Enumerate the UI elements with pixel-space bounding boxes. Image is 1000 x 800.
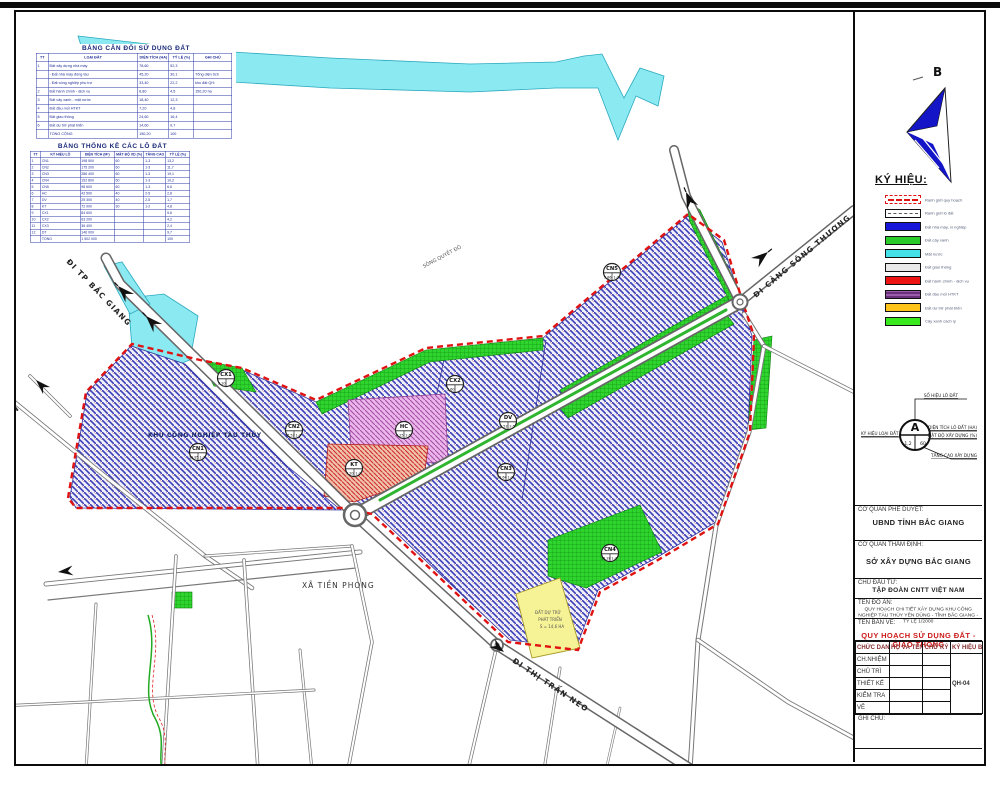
lot-symbol: CN119,851-3 [189,444,207,461]
svg-text:3,60: 3,60 [447,388,455,392]
approval-section: CƠ QUAN PHÊ DUYỆT: UBND TỈNH BẮC GIANG [855,505,982,540]
legend-label: Đất nhà máy, xí nghiệp [925,225,966,230]
sig-role: CH.NHIỆM [856,654,890,666]
appraisal-label: CƠ QUAN THẨM ĐỊNH: [858,542,979,548]
svg-text:1-3: 1-3 [199,456,205,460]
legend-swatch [885,222,921,231]
sig-header: HỌ VÀ TÊN [890,642,923,654]
lot-symbol: CN328,641-3 [497,464,515,481]
lot-symbol: KT7,201-2 [346,460,363,477]
svg-text:1-3: 1-3 [295,434,301,438]
table-cell: GHI CHÚ [194,53,232,62]
river-label: SÔNG QUYẾT ĐÔ [421,243,462,270]
commune-label: XÃ TIỀN PHONG [302,580,375,590]
legend-label: Mặt nước [925,252,950,257]
drawing-label: TÊN BẢN VẼ: [858,620,979,626]
approval-agency: UBND TỈNH BẮC GIANG [858,518,979,527]
legend-label: Ranh giới lô đất [925,211,954,216]
svg-text:CN2: CN2 [288,424,300,430]
sig-role: VẼ [856,702,890,714]
title-block-panel: B KÝ HIỆU: Ranh giới quy hoạchRanh giới … [853,12,984,762]
table-cell: TỔNG CỘNG [48,130,138,139]
table-cell: DIỆN TÍCH (HA) [138,53,169,62]
legend-item: Ranh giới lô đất [885,207,981,221]
table-cell [144,236,166,243]
svg-text:28,64: 28,64 [497,476,507,480]
legend-swatch [885,236,921,245]
reserve-label-3: S = 14,6 HA [540,624,565,629]
investor-label: CHỦ ĐẦU TƯ: [858,580,979,586]
legend-label: Đất cây xanh [925,238,950,243]
svg-text:2,53: 2,53 [500,425,508,429]
table-cell: 4,5 [169,87,194,96]
sig-header: KÝ HIỆU BV [951,642,983,654]
table-cell: Đất đầu mối HTKT [48,104,138,113]
svg-text:4,25: 4,25 [396,434,404,438]
lot-symbol-val-left: 1,2 [904,441,911,447]
sheet-top-bar [0,2,1000,8]
svg-text:CN5: CN5 [606,266,618,272]
legend-swatch [885,303,921,312]
svg-text:CN3: CN3 [500,466,512,472]
svg-text:CX1: CX1 [220,372,232,378]
table-cell: 78,60 [138,62,169,71]
lot-symbol: CN59,861-3 [604,264,621,281]
table-cell: Đất dự trữ phát triển [48,121,138,130]
table-cell: khu đất QH: [194,79,232,88]
sig-header: CHỨC DANH [856,642,890,654]
lot-stats-table: TTKÝ HIỆU LÔDIỆN TÍCH (M²)MẬT ĐỘ XD (%)T… [30,151,190,243]
table-cell [194,113,232,122]
lot-symbol: CX23,60 [447,376,464,393]
table-cell: 150,20 ha [194,87,232,96]
legend-item: Mặt nước [885,247,981,261]
svg-text:19,85: 19,85 [189,456,199,460]
approval-label: CƠ QUAN PHÊ DUYỆT: [858,507,979,513]
legend-item: Đất đầu mối HTKT [885,288,981,302]
table-cell: Đất cây xanh - mặt nước [48,96,138,105]
sig-header: CHỮ KÝ [923,642,951,654]
lot-symbol: HC4,252-5 [396,422,413,439]
lot-symbol-label-right2: MẬT ĐỘ XÂY DỰNG (%) [928,433,978,438]
table-cell: 7,20 [138,104,169,113]
table-cell [114,236,144,243]
svg-text:DV: DV [504,415,512,421]
sig-role: CHỦ TRÌ [856,666,890,678]
table-cell: 1 502 000 [80,236,114,243]
table-cell [194,104,232,113]
table-cell [194,121,232,130]
svg-text:2-5: 2-5 [405,434,411,438]
table-cell: LOẠI ĐẤT [48,53,138,62]
table-cell: 9,7 [169,121,194,130]
sig-role: KIỂM TRA [856,690,890,702]
legend-label: Đất dự trữ phát triển [925,306,962,311]
land-balance-table: TTLOẠI ĐẤTDIỆN TÍCH (HA)TỶ LỆ (%)GHI CHÚ… [36,53,232,139]
legend-item: Đất nhà máy, xí nghiệp [885,220,981,234]
signature-section: CHỨC DANH HỌ VÀ TÊN CHỮ KÝ KÝ HIỆU BV CH… [855,640,982,714]
road-song-thuong-label: ĐI CẢNG SÔNG THƯƠNG [751,212,853,300]
table-cell: 3 [36,96,48,105]
table-cell: 14,60 [138,121,169,130]
table-cell: 30,1 [169,70,194,79]
svg-text:1-3: 1-3 [507,476,513,480]
table-cell: Tổng diện tích [194,70,232,79]
table-cell: 100 [169,130,194,139]
lot-symbol-label-right1: DIỆN TÍCH LÔ ĐẤT (HA) [928,425,977,430]
lot-symbol: CN415,281-3 [601,545,619,562]
table-cell: 150,20 [138,130,169,139]
table-cell: 52,3 [169,62,194,71]
legend-list: Ranh giới quy hoạchRanh giới lô đấtĐất n… [885,193,981,328]
table-cell: 6,80 [138,87,169,96]
lot-stats-title: BẢNG THỐNG KÊ CÁC LÔ ĐẤT [30,142,195,150]
land-balance-title: BẢNG CÂN ĐỐI SỬ DỤNG ĐẤT [36,44,236,52]
table-cell [36,130,48,139]
reserve-label-1: ĐẤT DỰ TRỮ [535,610,562,615]
lot-symbol-label-bottom: TẦNG CAO XÂY DỰNG [930,453,977,458]
land-balance-table-block: BẢNG CÂN ĐỐI SỬ DỤNG ĐẤT TTLOẠI ĐẤTDIỆN … [36,44,236,139]
table-cell: TỔNG [41,236,80,243]
lot-symbol: DV2,532-5 [500,413,517,430]
investor-section: CHỦ ĐẦU TƯ: TẬP ĐOÀN CNTT VIỆT NAM [855,578,982,598]
svg-text:1-3: 1-3 [611,557,617,561]
legend-title: KÝ HIỆU: [875,174,927,186]
table-cell: 5 [36,113,48,122]
lot-symbol-val-right: 60 [920,441,926,447]
zone-name-label: KHU CÔNG NGHIỆP TÀU THỦY [148,431,262,439]
legend-item: Đất giao thông [885,261,981,275]
table-cell: 45,20 [138,70,169,79]
sig-role: THIẾT KẾ [856,678,890,690]
table-cell: 6 [36,121,48,130]
table-cell [36,70,48,79]
table-cell: Đất giao thông [48,113,138,122]
table-cell [194,96,232,105]
legend-item: Đất dự trữ phát triển [885,301,981,315]
legend-label: Đất hành chính - dịch vụ [925,279,969,284]
table-cell: Đất hành chính - dịch vụ [48,87,138,96]
legend-swatch [885,249,921,258]
svg-text:2,10: 2,10 [218,382,226,386]
svg-text:HC: HC [400,424,408,430]
lot-symbol-letter: A [911,421,920,434]
svg-text:CN1: CN1 [192,446,204,452]
appraisal-section: CƠ QUAN THẨM ĐỊNH: SỞ XÂY DỰNG BẮC GIANG [855,540,982,578]
project-section: TÊN ĐỒ ÁN: QUY HOẠCH CHI TIẾT XÂY DỰNG K… [855,598,982,618]
lot-symbol-key: A 1,2 60 SỐ HIỆU LÔ ĐẤT DIỆN TÍCH LÔ ĐẤT… [855,385,982,485]
bottom-section [855,748,982,774]
investor-name: TẬP ĐOÀN CNTT VIỆT NAM [858,587,979,594]
table-cell: 18,40 [138,96,169,105]
legend-item: Đất hành chính - dịch vụ [885,274,981,288]
svg-text:9,86: 9,86 [604,276,612,280]
svg-text:1-2: 1-2 [355,472,361,476]
legend-item: Cây xanh cách ly [885,315,981,329]
appraisal-agency: SỞ XÂY DỰNG BẮC GIANG [858,557,979,566]
drawing-section: TÊN BẢN VẼ: QUY HOẠCH SỬ DỤNG ĐẤT - GIAO… [855,618,982,640]
svg-text:7,20: 7,20 [346,472,354,476]
table-cell [36,79,48,88]
legend-swatch [885,290,921,299]
table-cell: 1 [36,62,48,71]
north-compass: B [893,60,963,190]
lot-symbol-label-top: SỐ HIỆU LÔ ĐẤT [924,393,959,398]
legend-swatch [885,195,921,204]
table-cell: Đất xây dựng nhà máy [48,62,138,71]
legend-swatch [885,276,921,285]
legend-swatch [885,209,921,218]
reserve-label-2: PHÁT TRIỂN [538,617,561,622]
legend-label: Đất đầu mối HTKT [925,292,959,297]
svg-text:17,52: 17,52 [285,434,295,438]
legend-swatch [885,263,921,272]
table-cell: 4,8 [169,104,194,113]
table-cell [30,236,40,243]
lot-symbol-label-left: KÝ HIỆU LOẠI ĐẤT [861,431,899,436]
legend-item: Đất cây xanh [885,234,981,248]
sheet-number: QH-04 [951,654,983,714]
table-cell [194,130,232,139]
table-cell [194,62,232,71]
note-section: GHI CHÚ: [855,714,982,748]
table-cell: 100 [166,236,190,243]
lot-stats-table-block: BẢNG THỐNG KÊ CÁC LÔ ĐẤT TTKÝ HIỆU LÔDIỆ… [30,142,195,243]
note-label: GHI CHÚ: [858,716,979,722]
legend-label: Cây xanh cách ly [925,319,956,324]
table-cell: 4 [36,104,48,113]
svg-text:CX2: CX2 [449,378,461,384]
legend-item: Ranh giới quy hoạch [885,193,981,207]
svg-text:CN4: CN4 [604,547,616,553]
table-cell: TT [36,53,48,62]
signature-table: CHỨC DANH HỌ VÀ TÊN CHỮ KÝ KÝ HIỆU BV CH… [855,641,983,714]
svg-text:15,28: 15,28 [601,557,611,561]
table-cell: 2 [36,87,48,96]
table-cell: 22,2 [169,79,194,88]
north-label: B [933,65,942,79]
table-cell: 12,3 [169,96,194,105]
lot-symbol: CN217,521-3 [285,422,303,439]
svg-text:2-5: 2-5 [509,425,515,429]
table-cell: 16,4 [169,113,194,122]
legend-swatch [885,317,921,326]
svg-text:1-3: 1-3 [613,276,619,280]
table-cell: 24,60 [138,113,169,122]
table-cell: - Đất nhà máy đóng tàu [48,70,138,79]
legend-label: Ranh giới quy hoạch [925,198,962,203]
lot-symbol: CX12,10 [218,370,235,387]
svg-text:KT: KT [350,462,358,468]
legend-label: Đất giao thông [925,265,951,270]
table-cell: 33,40 [138,79,169,88]
table-cell: - Đất công nghiệp phụ trợ [48,79,138,88]
table-cell: TỶ LỆ (%) [169,53,194,62]
road-neo-label: ĐI THỊ TRẤN NEO [511,655,591,714]
